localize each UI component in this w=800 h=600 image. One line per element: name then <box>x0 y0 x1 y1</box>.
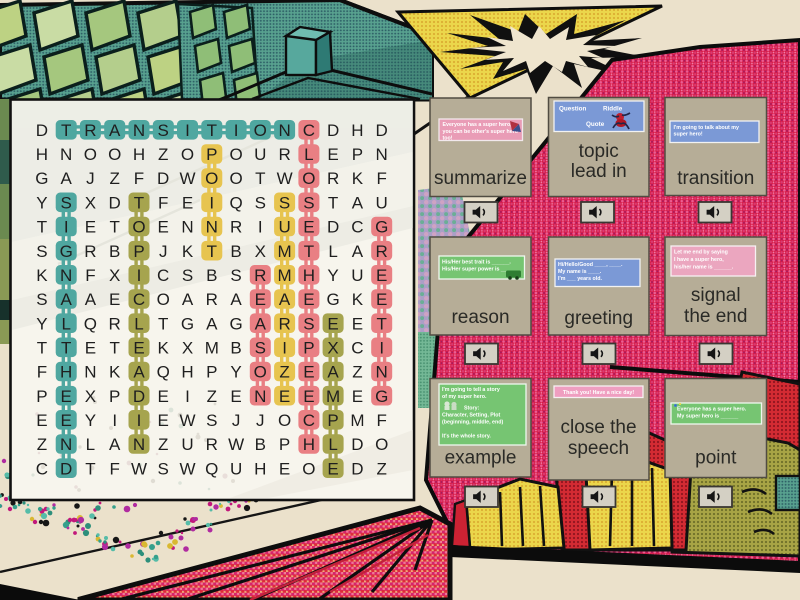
svg-text:TIETOENNRIUEDCG: TIETOENNRIUEDCG <box>37 218 389 237</box>
svg-text:Quote: Quote <box>586 121 605 128</box>
svg-text:KNFXICSBSRMHYUE: KNFXICSBSRMHYUE <box>36 266 387 285</box>
svg-text:Everyone has a super hero.: Everyone has a super hero. <box>677 406 747 412</box>
svg-text:Let me end by saying: Let me end by saying <box>674 250 728 256</box>
svg-text:point: point <box>695 448 737 469</box>
svg-text:Riddle: Riddle <box>603 106 623 113</box>
svg-text:close the: close the <box>560 417 636 438</box>
svg-text:speech: speech <box>568 438 629 459</box>
svg-text:his/her name is ______.: his/her name is ______. <box>674 264 734 270</box>
svg-text:SAAECOARAEAEGKE: SAAECOARAEAEGKE <box>36 290 387 309</box>
svg-text:topic: topic <box>579 141 619 162</box>
svg-text:It's the whole story.: It's the whole story. <box>442 434 491 440</box>
svg-text:of my super hero.: of my super hero. <box>442 394 487 400</box>
svg-text:Story:: Story: <box>464 406 480 412</box>
svg-text:I have a super hero,: I have a super hero, <box>674 257 724 263</box>
svg-text:DTRANSITIONCDHD: DTRANSITIONCDHD <box>36 121 388 140</box>
svg-text:His/Her best trait is ______.: His/Her best trait is ______. <box>442 259 511 265</box>
svg-text:SGRBPJKTBXMTLAR: SGRBPJKTBXMTLAR <box>36 242 388 261</box>
svg-text:too!: too! <box>443 135 453 141</box>
svg-text:I'm ___ years old.: I'm ___ years old. <box>558 276 602 282</box>
svg-text:ZNLANZURWBPHLDO: ZNLANZURWBPHLDO <box>37 435 389 454</box>
svg-text:greeting: greeting <box>564 308 633 329</box>
svg-text:Everyone has a super hero,: Everyone has a super hero, <box>443 122 513 128</box>
svg-text:transition: transition <box>677 168 754 189</box>
svg-text:Question: Question <box>559 106 586 113</box>
svg-text:HNOOHZOPOURLEPN: HNOOHZOPOURLEPN <box>36 145 388 164</box>
svg-text:I'm going to talk about my: I'm going to talk about my <box>674 125 739 131</box>
svg-text:FHNKAQHPYOZEAZN: FHNKAQHPYOZEAZN <box>37 363 388 382</box>
svg-text:YSXDTFEIQSSSTAU: YSXDTFEIQSSSTAU <box>36 193 388 212</box>
svg-text:EEYIIEWSJJOCPMF: EEYIIEWSJJOCPMF <box>36 411 387 430</box>
svg-text:signal: signal <box>691 285 741 306</box>
svg-text:His/Her super power is ___: His/Her super power is ___ <box>442 266 510 272</box>
svg-text:the end: the end <box>684 306 747 327</box>
svg-text:TTETEKXMBSIPXCI: TTETEKXMBSIPXCI <box>37 338 384 357</box>
svg-text:you can be other's super hero: you can be other's super hero <box>443 129 519 135</box>
svg-text:My super hero is ______: My super hero is ______ <box>677 414 738 420</box>
svg-text:Thank you! Have a nice day!: Thank you! Have a nice day! <box>563 390 634 396</box>
svg-text:CDTFWSWQUHEOEDZ: CDTFWSWQUHEOEDZ <box>36 459 387 478</box>
svg-text:super hero!: super hero! <box>674 132 703 138</box>
svg-text:(beginning, middle, end): (beginning, middle, end) <box>442 420 503 426</box>
svg-text:YLQRLTGAGARSEET: YLQRLTGAGARSEET <box>36 314 387 333</box>
svg-text:My name is ____.: My name is ____. <box>558 269 602 275</box>
svg-text:PEXPDEIZENEEMEG: PEXPDEIZENEEMEG <box>36 387 388 406</box>
svg-text:summarize: summarize <box>434 168 527 189</box>
svg-text:Hi/Hello/Good ____, ____.: Hi/Hello/Good ____, ____. <box>558 262 623 268</box>
svg-text:lead in: lead in <box>571 161 627 182</box>
svg-text:Character, Setting, Plot: Character, Setting, Plot <box>442 413 501 419</box>
svg-text:I'm going to tell a story: I'm going to tell a story <box>442 387 500 393</box>
svg-text:example: example <box>445 448 517 469</box>
svg-text:GAJZFDWOOTWORKF: GAJZFDWOOTWORKF <box>35 169 387 188</box>
svg-text:reason: reason <box>451 307 509 328</box>
